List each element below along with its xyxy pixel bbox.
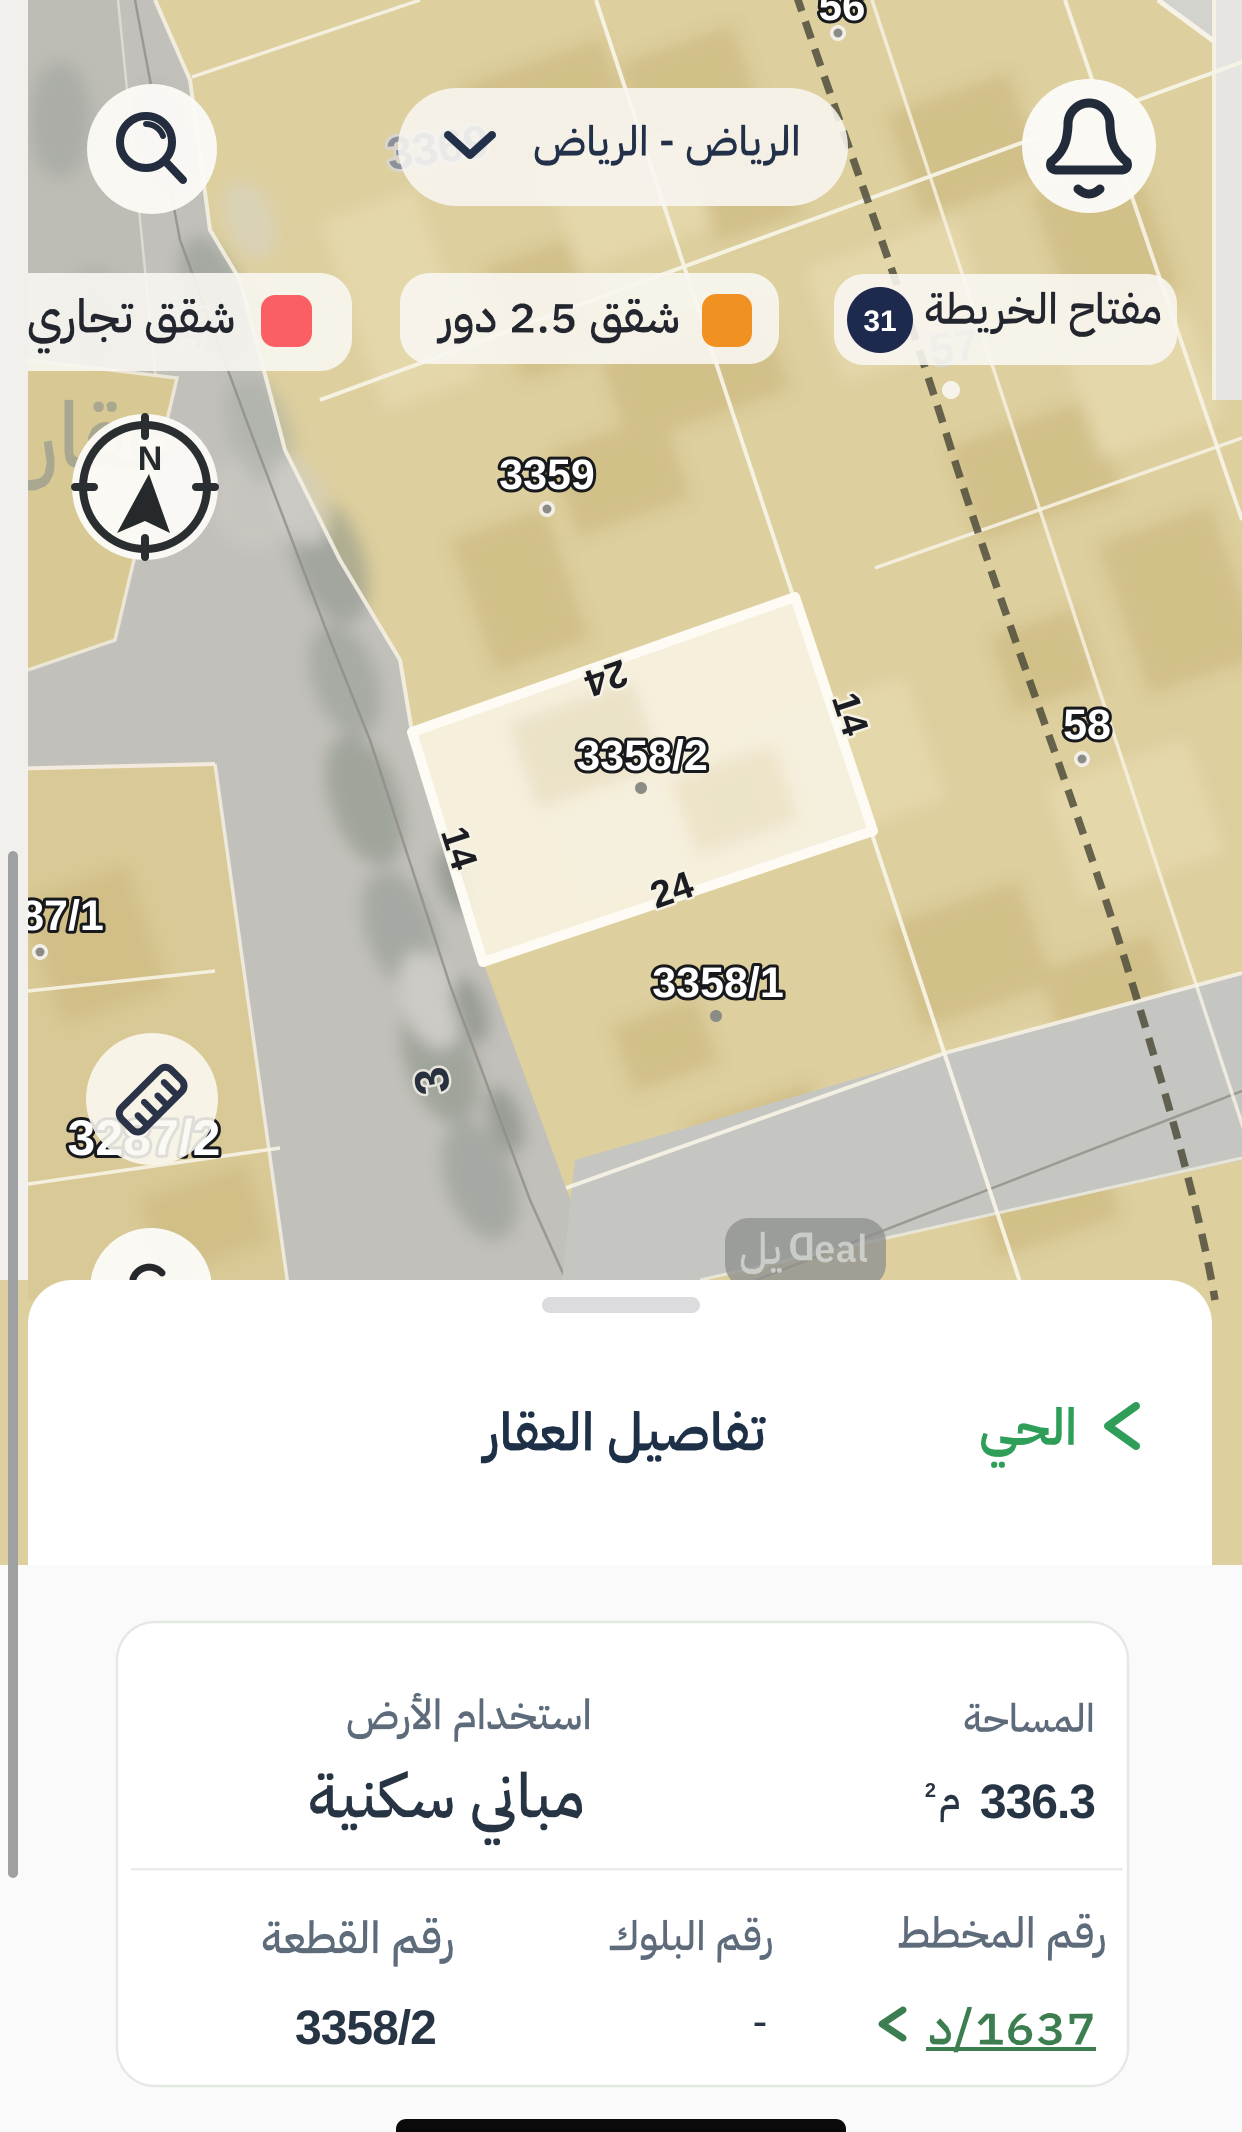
svg-text:31: 31 bbox=[863, 305, 896, 338]
svg-text:3359: 3359 bbox=[499, 451, 595, 499]
svg-text:3358/2: 3358/2 bbox=[576, 732, 708, 780]
svg-text:3358/2: 3358/2 bbox=[295, 2002, 436, 2055]
svg-text:-: - bbox=[753, 1997, 768, 2046]
svg-text:56: 56 bbox=[819, 0, 866, 29]
svg-text:58: 58 bbox=[1063, 701, 1111, 749]
svg-text:87/1: 87/1 bbox=[20, 892, 104, 940]
svg-text:3358/1: 3358/1 bbox=[652, 959, 784, 1007]
svg-text:N: N bbox=[138, 440, 163, 478]
svg-text:2: 2 bbox=[925, 1780, 936, 1802]
svg-text:336.3: 336.3 bbox=[980, 1776, 1095, 1829]
